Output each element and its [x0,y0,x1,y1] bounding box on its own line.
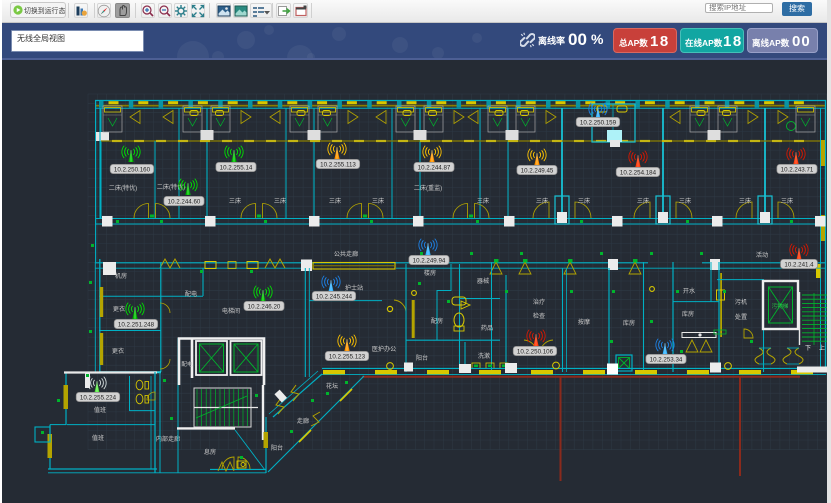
svg-text:三床: 三床 [739,197,751,205]
svg-text:值班: 值班 [94,406,106,414]
svg-text:10.2.241.4: 10.2.241.4 [784,261,814,268]
svg-text:10.2.243.71: 10.2.243.71 [781,166,814,173]
svg-text:污物梯: 污物梯 [772,302,789,310]
svg-text:库房: 库房 [682,310,694,318]
svg-text:10.2.249.94: 10.2.249.94 [413,257,446,264]
svg-text:10.2.253.34: 10.2.253.34 [650,356,683,363]
svg-text:三床: 三床 [536,197,548,205]
svg-text:活动: 活动 [756,251,768,259]
svg-text:电梯间: 电梯间 [222,307,240,315]
svg-text:花坛: 花坛 [326,382,338,390]
svg-text:三床: 三床 [274,197,286,205]
svg-text:楼房: 楼房 [424,269,436,277]
svg-text:污机: 污机 [735,298,747,306]
svg-text:公共走廊: 公共走廊 [334,250,358,258]
svg-text:10.2.255.123: 10.2.255.123 [329,353,366,360]
svg-text:洗漱: 洗漱 [478,352,490,360]
svg-text:医护办公: 医护办公 [372,345,396,353]
svg-text:治疗: 治疗 [533,298,545,306]
svg-text:10.2.255.224: 10.2.255.224 [80,394,117,401]
svg-text:三床: 三床 [637,197,649,205]
svg-text:开水: 开水 [683,287,695,295]
svg-text:配电: 配电 [185,290,197,298]
svg-text:内部走廊: 内部走廊 [156,435,180,443]
svg-text:三床: 三床 [229,197,241,205]
svg-text:处置: 处置 [735,313,747,321]
svg-text:10.2.255.113: 10.2.255.113 [320,161,356,168]
svg-text:10.2.255.14: 10.2.255.14 [220,164,253,171]
svg-text:三床: 三床 [372,197,384,205]
svg-text:二床(重监): 二床(重监) [414,184,442,192]
svg-text:10.2.251.248: 10.2.251.248 [118,321,155,328]
svg-text:10.2.249.45: 10.2.249.45 [521,167,554,174]
svg-text:三床: 三床 [679,197,691,205]
svg-text:10.2.254.184: 10.2.254.184 [620,169,657,176]
svg-text:库房: 库房 [623,319,635,327]
svg-text:配房: 配房 [431,317,443,325]
svg-text:走廊: 走廊 [297,417,309,425]
svg-text:10.2.250.159: 10.2.250.159 [580,119,617,126]
svg-text:按摩: 按摩 [578,318,590,326]
svg-text:药品: 药品 [481,324,493,332]
svg-text:二床(特优): 二床(特优) [157,183,185,191]
svg-text:检查: 检查 [533,312,545,320]
svg-text:10.2.244.60: 10.2.244.60 [168,198,201,205]
svg-text:三床: 三床 [477,197,489,205]
svg-text:上: 上 [819,344,825,352]
svg-text:器械: 器械 [477,277,489,285]
svg-text:阳台: 阳台 [416,354,428,362]
svg-text:机房: 机房 [115,272,127,280]
svg-text:10.2.246.20: 10.2.246.20 [248,303,281,310]
svg-text:二床(特优): 二床(特优) [109,184,137,192]
svg-text:10.2.250.160: 10.2.250.160 [114,166,151,173]
svg-text:阳台: 阳台 [271,444,283,452]
svg-text:10.2.245.244: 10.2.245.244 [316,293,353,300]
svg-text:三床: 三床 [781,197,793,205]
svg-text:更衣: 更衣 [113,305,125,313]
svg-text:下: 下 [805,345,811,352]
svg-text:配电: 配电 [181,360,193,368]
svg-text:息房: 息房 [204,448,216,456]
svg-text:10.2.244.87: 10.2.244.87 [418,164,451,171]
svg-text:10.2.250.106: 10.2.250.106 [517,348,554,355]
svg-text:更衣: 更衣 [112,347,124,355]
svg-text:三床: 三床 [329,197,341,205]
svg-text:三床: 三床 [578,197,590,205]
svg-text:护士站: 护士站 [345,284,363,292]
svg-text:值班: 值班 [92,434,104,442]
